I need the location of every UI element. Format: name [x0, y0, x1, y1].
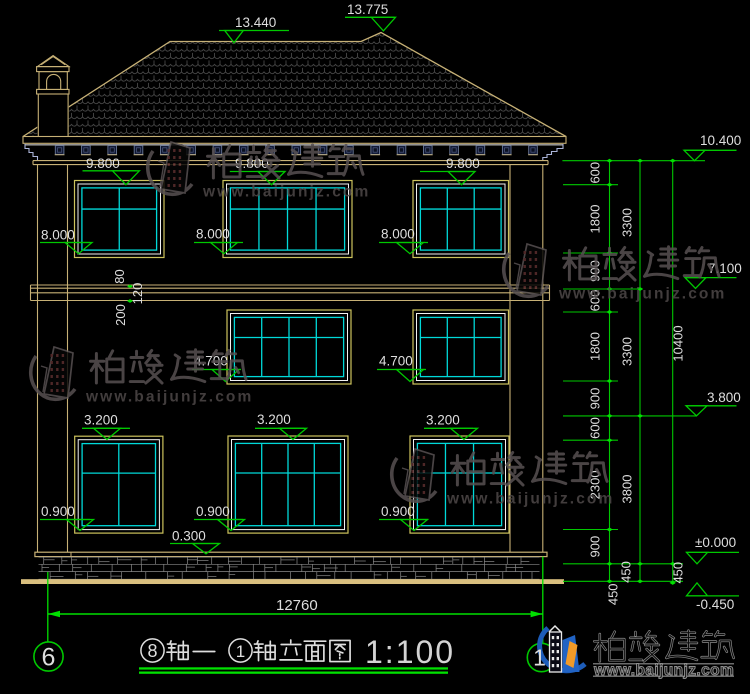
svg-text:1: 1	[533, 645, 546, 671]
svg-text:13.775: 13.775	[347, 2, 388, 17]
svg-text:±0.000: ±0.000	[695, 535, 736, 550]
svg-text:600: 600	[588, 162, 603, 184]
svg-text:9.800: 9.800	[446, 156, 480, 171]
svg-text:1800: 1800	[588, 205, 603, 234]
svg-text:1: 1	[236, 642, 245, 661]
svg-text:13.440: 13.440	[235, 15, 276, 30]
svg-text:www.baijunjz.com: www.baijunjz.com	[202, 184, 370, 201]
svg-text:10400: 10400	[671, 325, 686, 361]
svg-text:3.200: 3.200	[257, 412, 291, 427]
svg-text:8.000: 8.000	[381, 227, 415, 242]
svg-text:4.700: 4.700	[379, 354, 413, 369]
svg-text:8: 8	[147, 641, 157, 661]
svg-text:900: 900	[588, 388, 603, 410]
svg-text:0.900: 0.900	[196, 504, 230, 519]
svg-text:8.000: 8.000	[196, 227, 230, 242]
svg-text:1800: 1800	[588, 332, 603, 361]
svg-text:3.800: 3.800	[707, 390, 741, 405]
svg-text:www.baijunjz.com: www.baijunjz.com	[593, 662, 734, 679]
svg-text:7.100: 7.100	[708, 261, 742, 276]
svg-text:1:100: 1:100	[365, 634, 455, 670]
svg-text:0.900: 0.900	[41, 504, 75, 519]
svg-text:-0.450: -0.450	[696, 597, 734, 612]
svg-text:9.800: 9.800	[86, 156, 120, 171]
svg-text:3300: 3300	[620, 337, 635, 366]
svg-text:www.baijunjz.com: www.baijunjz.com	[558, 286, 726, 303]
svg-text:80: 80	[112, 269, 127, 283]
svg-text:3800: 3800	[620, 475, 635, 504]
svg-text:600: 600	[588, 417, 603, 439]
svg-text:3.200: 3.200	[426, 413, 460, 428]
svg-text:12760: 12760	[276, 597, 318, 614]
svg-text:www.baijunjz.com: www.baijunjz.com	[85, 389, 253, 406]
svg-text:10.400: 10.400	[700, 133, 741, 148]
svg-text:200: 200	[113, 304, 128, 326]
svg-text:900: 900	[588, 536, 603, 558]
svg-text:www.baijunjz.com: www.baijunjz.com	[446, 491, 614, 508]
svg-text:6: 6	[42, 644, 56, 672]
svg-text:0.300: 0.300	[172, 529, 206, 544]
svg-text:0.900: 0.900	[381, 504, 415, 519]
svg-text:450: 450	[619, 561, 634, 583]
svg-text:8.000: 8.000	[41, 228, 75, 243]
svg-text:450: 450	[606, 583, 621, 605]
svg-text:3.200: 3.200	[84, 413, 118, 428]
svg-text:450: 450	[671, 562, 686, 584]
svg-text:3300: 3300	[620, 208, 635, 237]
